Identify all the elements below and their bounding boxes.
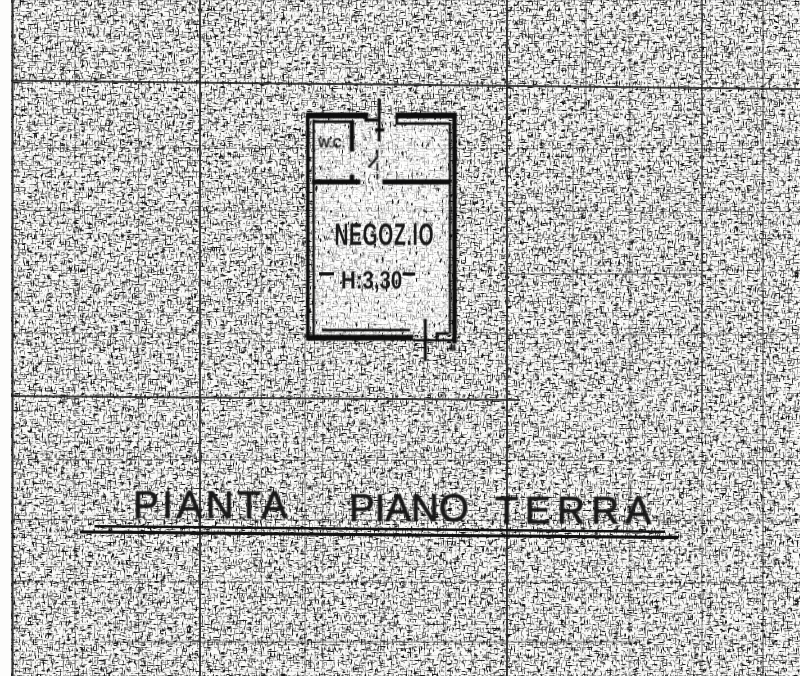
svg-text:H:3,30: H:3,30 xyxy=(341,267,402,295)
svg-text:NEGOZ.IO: NEGOZ.IO xyxy=(335,217,435,252)
svg-text:TERRA: TERRA xyxy=(495,489,657,532)
svg-text:PIANO: PIANO xyxy=(349,487,469,530)
svg-text:PIANTA: PIANTA xyxy=(133,484,291,527)
svg-text:W.C.: W.C. xyxy=(318,136,345,151)
